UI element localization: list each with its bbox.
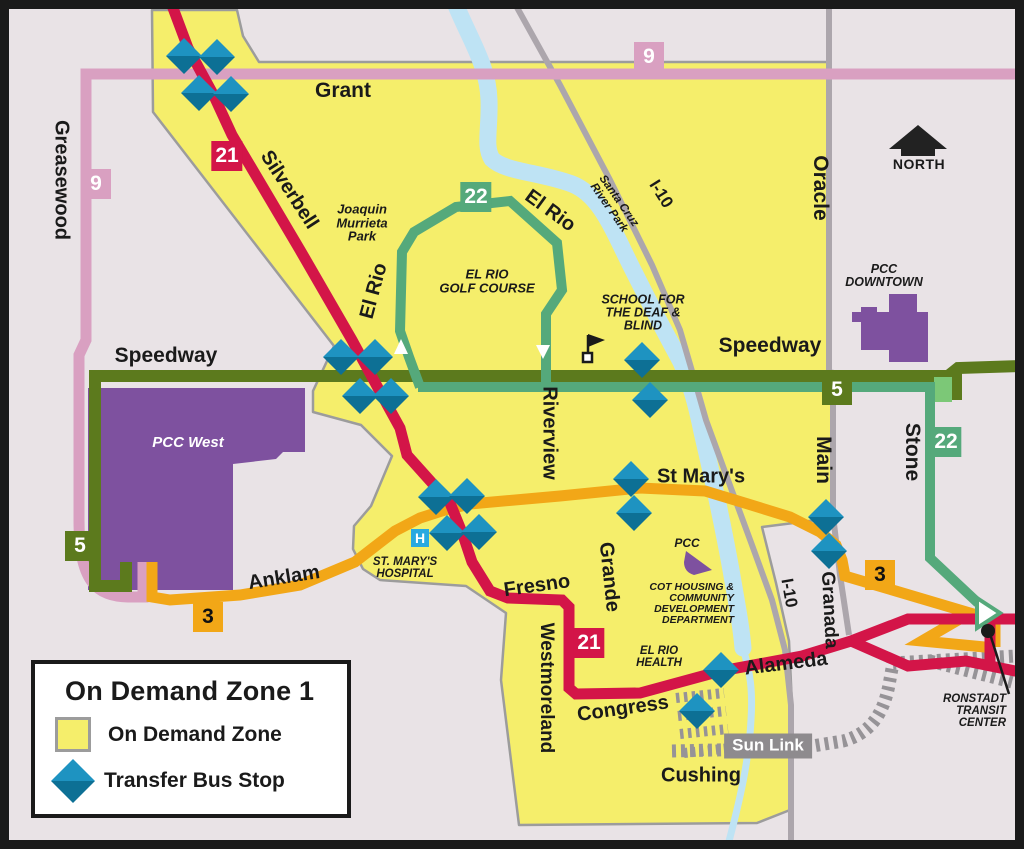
- north-label: NORTH: [893, 156, 945, 172]
- transit-map: GreasewoodGrantSilverbellEl RioEl RioSpe…: [0, 0, 1024, 849]
- north-arrow-icon: [889, 125, 947, 156]
- building-pcc-downtown: [852, 294, 928, 362]
- route-badge-5: 5: [65, 531, 95, 561]
- sunlink-label: Sun Link: [724, 734, 812, 759]
- route-badge-5: 5: [822, 375, 852, 405]
- route-badge-9: 9: [634, 42, 664, 72]
- route-badge-21: 21: [573, 628, 604, 658]
- route-badge-22: 22: [460, 182, 491, 212]
- legend-zone-label: On Demand Zone: [108, 723, 282, 747]
- route-badge-22: 22: [930, 427, 961, 457]
- route-badge-9: 9: [81, 169, 111, 199]
- route-badge-3: 3: [193, 602, 223, 632]
- zone-swatch: [55, 717, 91, 752]
- legend: On Demand Zone 1 On Demand Zone Transfer…: [31, 660, 351, 818]
- route-22-terminal-marker: [934, 377, 952, 402]
- transfer-stop-icon: [51, 759, 95, 803]
- legend-stop-label: Transfer Bus Stop: [104, 769, 285, 793]
- legend-row-stop: Transfer Bus Stop: [55, 761, 333, 801]
- route-badge-3: 3: [865, 560, 895, 590]
- hospital-icon: H: [411, 529, 429, 547]
- road-main-granada: [833, 372, 849, 635]
- building-pcc-west: [88, 388, 305, 590]
- legend-row-zone: On Demand Zone: [55, 717, 333, 752]
- legend-title: On Demand Zone 1: [65, 676, 333, 707]
- route-badge-21: 21: [211, 141, 242, 171]
